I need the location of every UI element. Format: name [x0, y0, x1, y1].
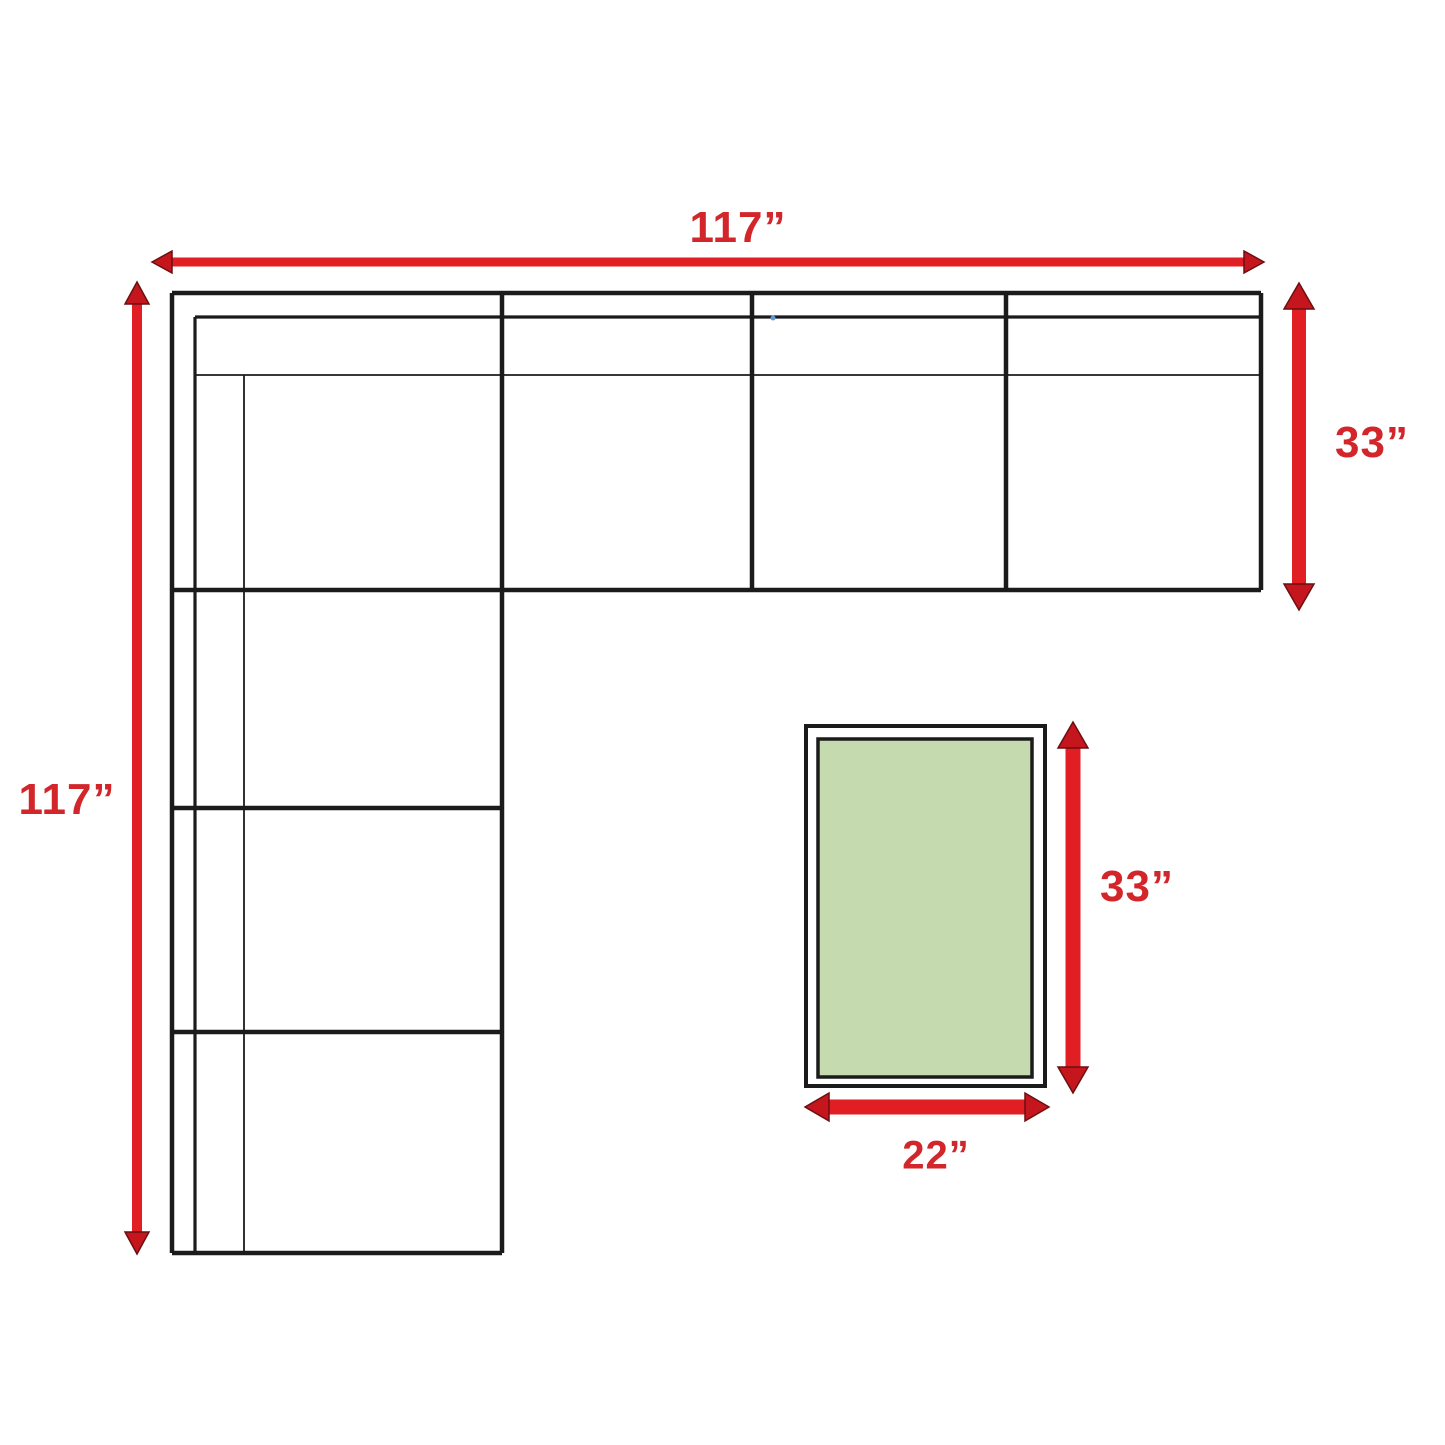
sofa-width-arrow-right-head — [1244, 251, 1264, 273]
sofa-depth-arrow-top-head — [1284, 283, 1314, 309]
ottoman-width-arrow — [805, 1093, 1049, 1121]
sofa-height-arrow-top-head — [125, 282, 149, 304]
ottoman-width-arrow-right-head — [1025, 1093, 1049, 1121]
ottoman-width-arrow-left-head — [805, 1093, 829, 1121]
ottoman-cushion-rect — [818, 739, 1032, 1077]
sofa-width-label: 117” — [690, 203, 787, 253]
ottoman-width-label: 22” — [902, 1134, 970, 1179]
ottoman-length-label: 33” — [1100, 862, 1174, 912]
sectional-sofa-outline — [172, 293, 1261, 1253]
sofa-depth-arrow — [1284, 283, 1314, 610]
sofa-height-arrow — [125, 282, 149, 1254]
ottoman-length-arrow-bottom-head — [1058, 1067, 1088, 1093]
sectional-dimension-diagram: 117” 117” 33” 33” 22” — [0, 0, 1445, 1445]
sofa-width-arrow — [152, 251, 1264, 273]
ottoman-length-arrow-top-head — [1058, 722, 1088, 748]
artifact-dot-blue — [771, 316, 776, 321]
ottoman-outline — [806, 726, 1045, 1086]
sofa-height-arrow-bottom-head — [125, 1232, 149, 1254]
sofa-width-arrow-left-head — [152, 251, 172, 273]
sofa-height-label: 117” — [19, 775, 116, 825]
ottoman-length-arrow — [1058, 722, 1088, 1093]
sofa-depth-label: 33” — [1335, 418, 1409, 468]
sofa-depth-arrow-bottom-head — [1284, 584, 1314, 610]
